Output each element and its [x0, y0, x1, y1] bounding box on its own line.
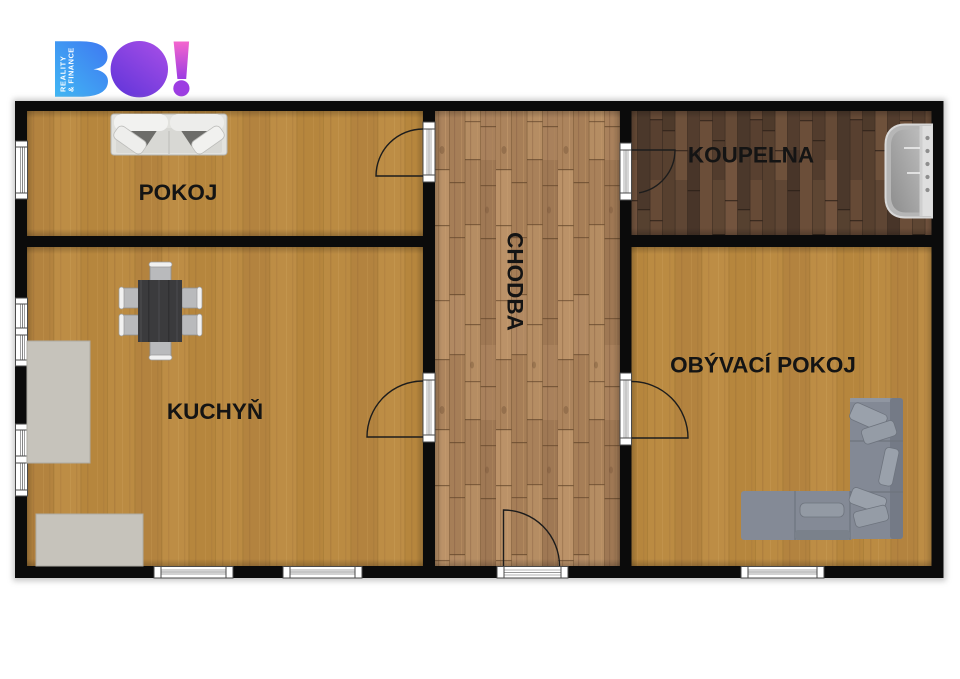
svg-text:OBÝVACÍ POKOJ: OBÝVACÍ POKOJ [670, 353, 856, 378]
svg-text:POKOJ: POKOJ [139, 180, 218, 205]
svg-text:& FINANCE: & FINANCE [67, 47, 76, 92]
svg-text:KUCHYŇ: KUCHYŇ [167, 399, 263, 424]
svg-text:KOUPELNA: KOUPELNA [688, 143, 814, 168]
svg-text:CHODBA: CHODBA [503, 232, 528, 331]
